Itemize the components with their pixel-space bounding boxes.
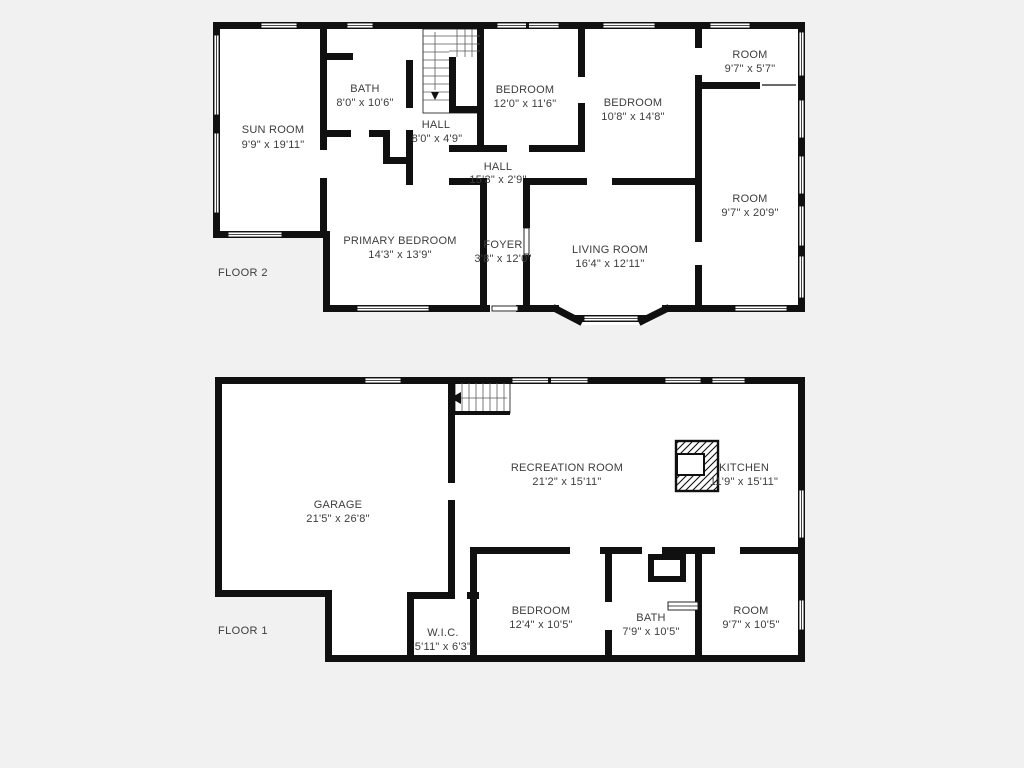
floor1-label: FLOOR 1 [218,625,268,637]
label-rec-room-name: RECREATION ROOM [511,462,623,474]
label-kitchen-dims: 11'9" x 15'11" [710,476,778,488]
floor2-label: FLOOR 2 [218,267,268,279]
label-bedroom-b-dims: 10'8" x 14'8" [601,111,665,123]
label-bath1-dims: 7'9" x 10'5" [622,626,679,638]
label-room1-name: ROOM [733,605,768,617]
label-bath2-dims: 8'0" x 10'6" [336,97,393,109]
label-bath2-name: BATH [350,83,380,95]
label-room-top-dims: 9'7" x 5'7" [725,63,776,75]
label-hall-long-name: HALL [484,161,513,173]
label-hall-upper-dims: 8'0" x 4'9" [412,133,463,145]
label-garage-dims: 21'5" x 26'8" [306,513,370,525]
label-living-dims: 16'4" x 12'11" [575,258,644,270]
label-hall-upper-name: HALL [422,119,451,131]
label-hall-long-dims: 15'3" x 2'9" [469,174,526,186]
label-room-right-name: ROOM [732,193,767,205]
label-bedroom-a-dims: 12'0" x 11'6" [494,98,557,110]
label-foyer-dims: 3'8" x 12'0" [474,253,531,265]
label-sun-room-dims: 9'9" x 19'11" [242,139,305,151]
label-primary-dims: 14'3" x 13'9" [368,249,432,261]
floor-plan-page: SUN ROOM 9'9" x 19'11" BATH 8'0" x 10'6"… [0,0,1024,768]
label-bedroom-b-name: BEDROOM [604,97,663,109]
label-rec-room-dims: 21'2" x 15'11" [532,476,601,488]
label-bedroom1-dims: 12'4" x 10'5" [509,619,573,631]
label-bedroom1-name: BEDROOM [512,605,571,617]
label-foyer-name: FOYER [483,239,522,251]
floor2-plan: SUN ROOM 9'9" x 19'11" BATH 8'0" x 10'6"… [213,22,805,325]
label-sun-room-name: SUN ROOM [242,124,305,136]
label-garage-name: GARAGE [314,499,363,511]
label-bath1-name: BATH [636,612,666,624]
label-room-top-name: ROOM [732,49,767,61]
label-wic-name: W.I.C. [427,627,458,639]
label-living-name: LIVING ROOM [572,244,648,256]
label-room-right-dims: 9'7" x 20'9" [721,207,778,219]
label-room1-dims: 9'7" x 10'5" [722,619,779,631]
label-wic-dims: 5'11" x 6'3" [415,641,471,653]
label-primary-name: PRIMARY BEDROOM [343,235,456,247]
label-bedroom-a-name: BEDROOM [496,84,555,96]
floor1-plan: GARAGE 21'5" x 26'8" RECREATION ROOM 21'… [215,377,805,662]
floor-plan-drawing: SUN ROOM 9'9" x 19'11" BATH 8'0" x 10'6"… [0,0,1024,768]
label-kitchen-name: KITCHEN [719,462,769,474]
